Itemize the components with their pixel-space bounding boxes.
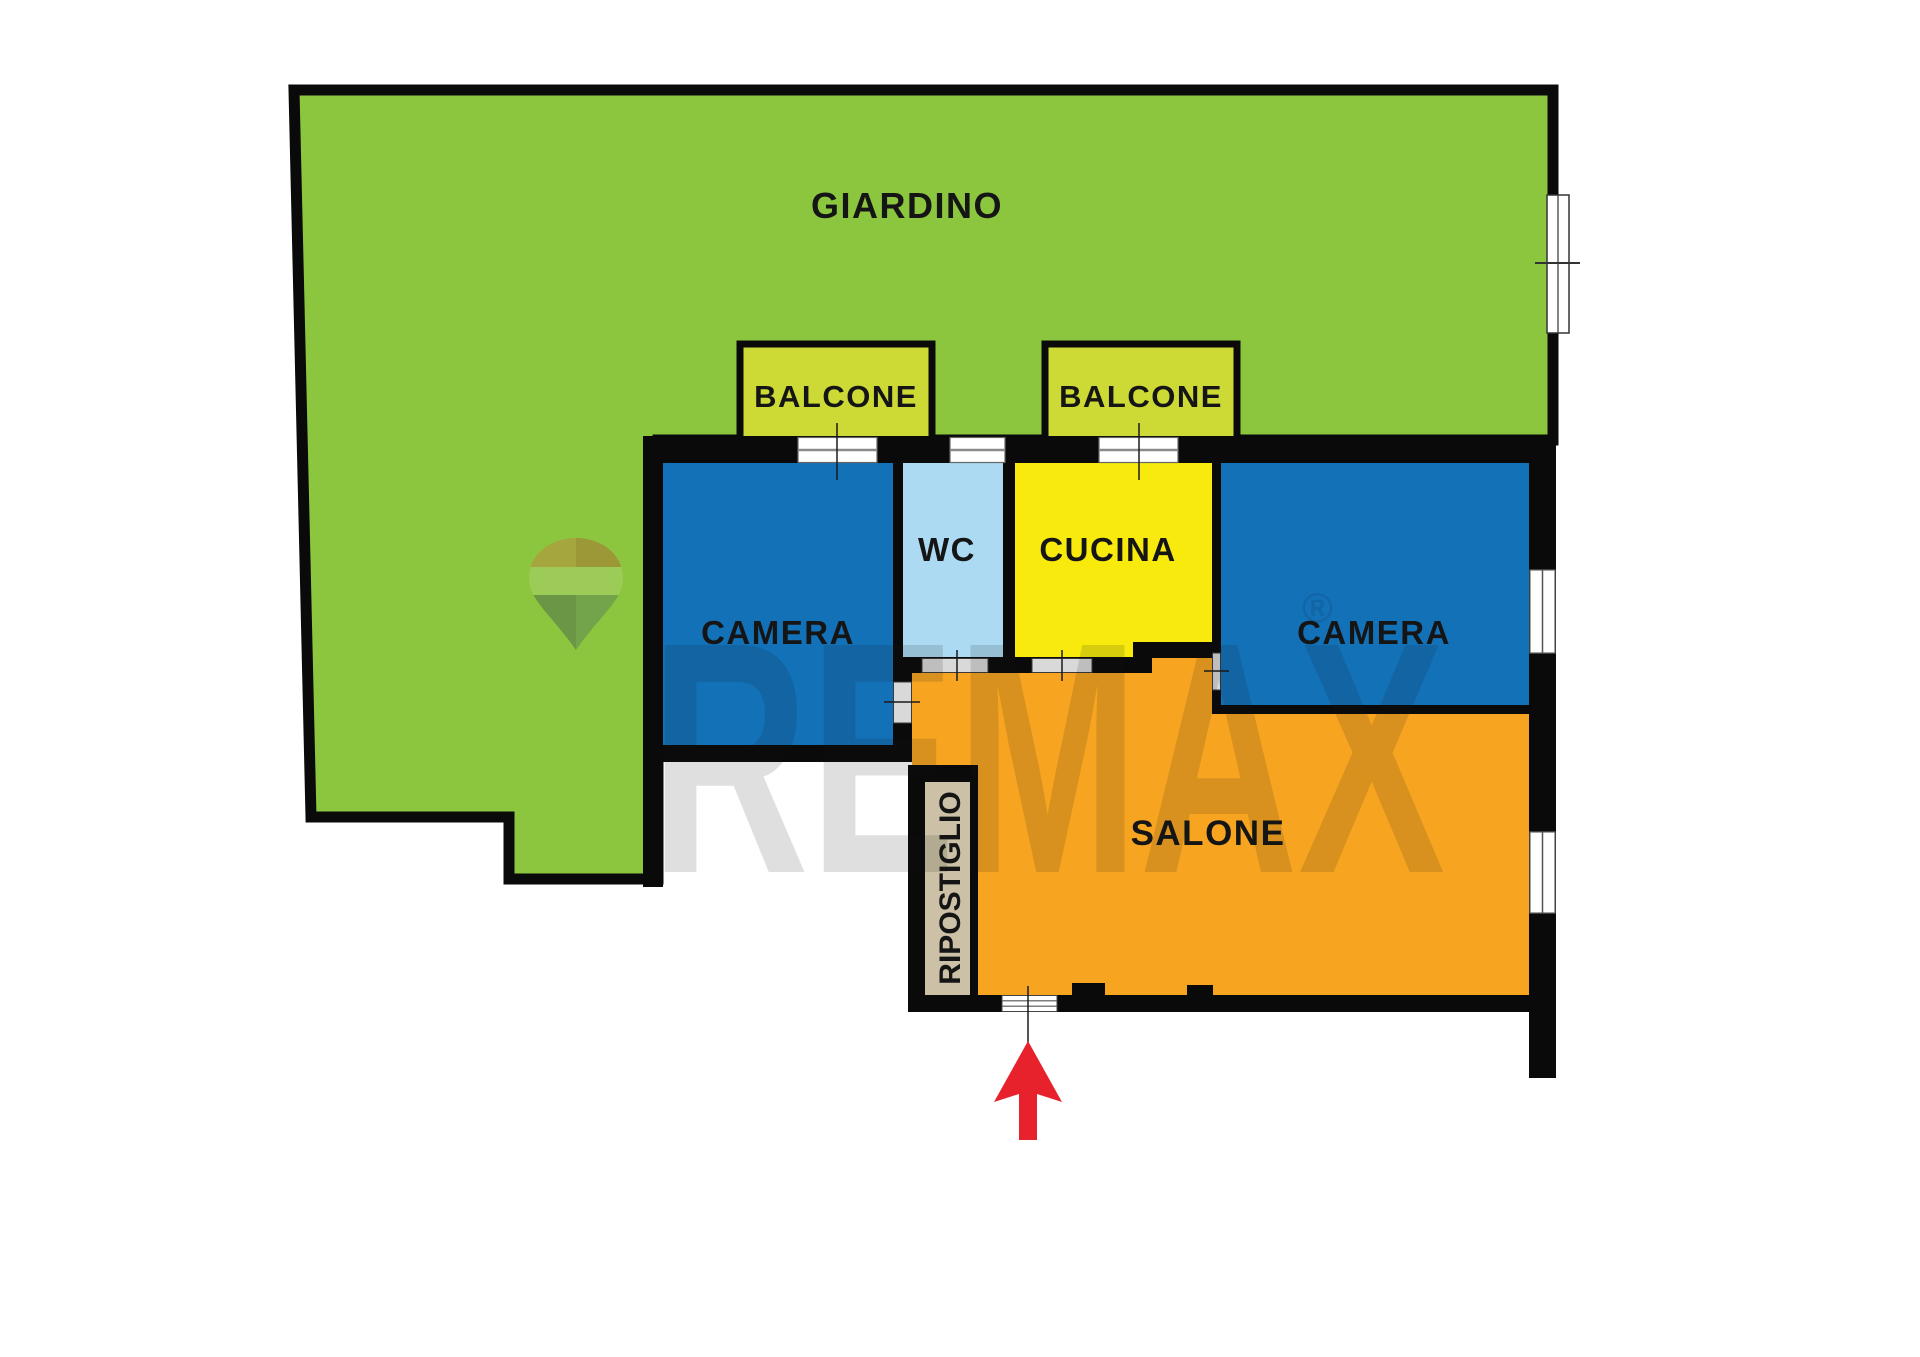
label-wc: WC: [918, 531, 976, 568]
label-cucina: CUCINA: [1039, 531, 1176, 568]
label-camera-left: CAMERA: [701, 614, 855, 651]
label-camera-right: CAMERA: [1297, 614, 1451, 651]
label-ripostiglio: RIPOSTIGLIO: [934, 791, 967, 984]
entrance-arrow-icon: [994, 1041, 1062, 1140]
label-salone: SALONE: [1131, 814, 1286, 853]
window-salone-icon: [1530, 832, 1555, 913]
label-balcone-right: BALCONE: [1059, 379, 1223, 414]
window-camera-right-icon: [1530, 570, 1555, 653]
label-giardino: GIARDINO: [811, 185, 1003, 226]
window-wc-icon: [950, 438, 1005, 463]
floorplan-canvas: REMAX ® GIARDINO BALCONE BALCONE CAMERA …: [0, 0, 1920, 1357]
label-balcone-left: BALCONE: [754, 379, 918, 414]
